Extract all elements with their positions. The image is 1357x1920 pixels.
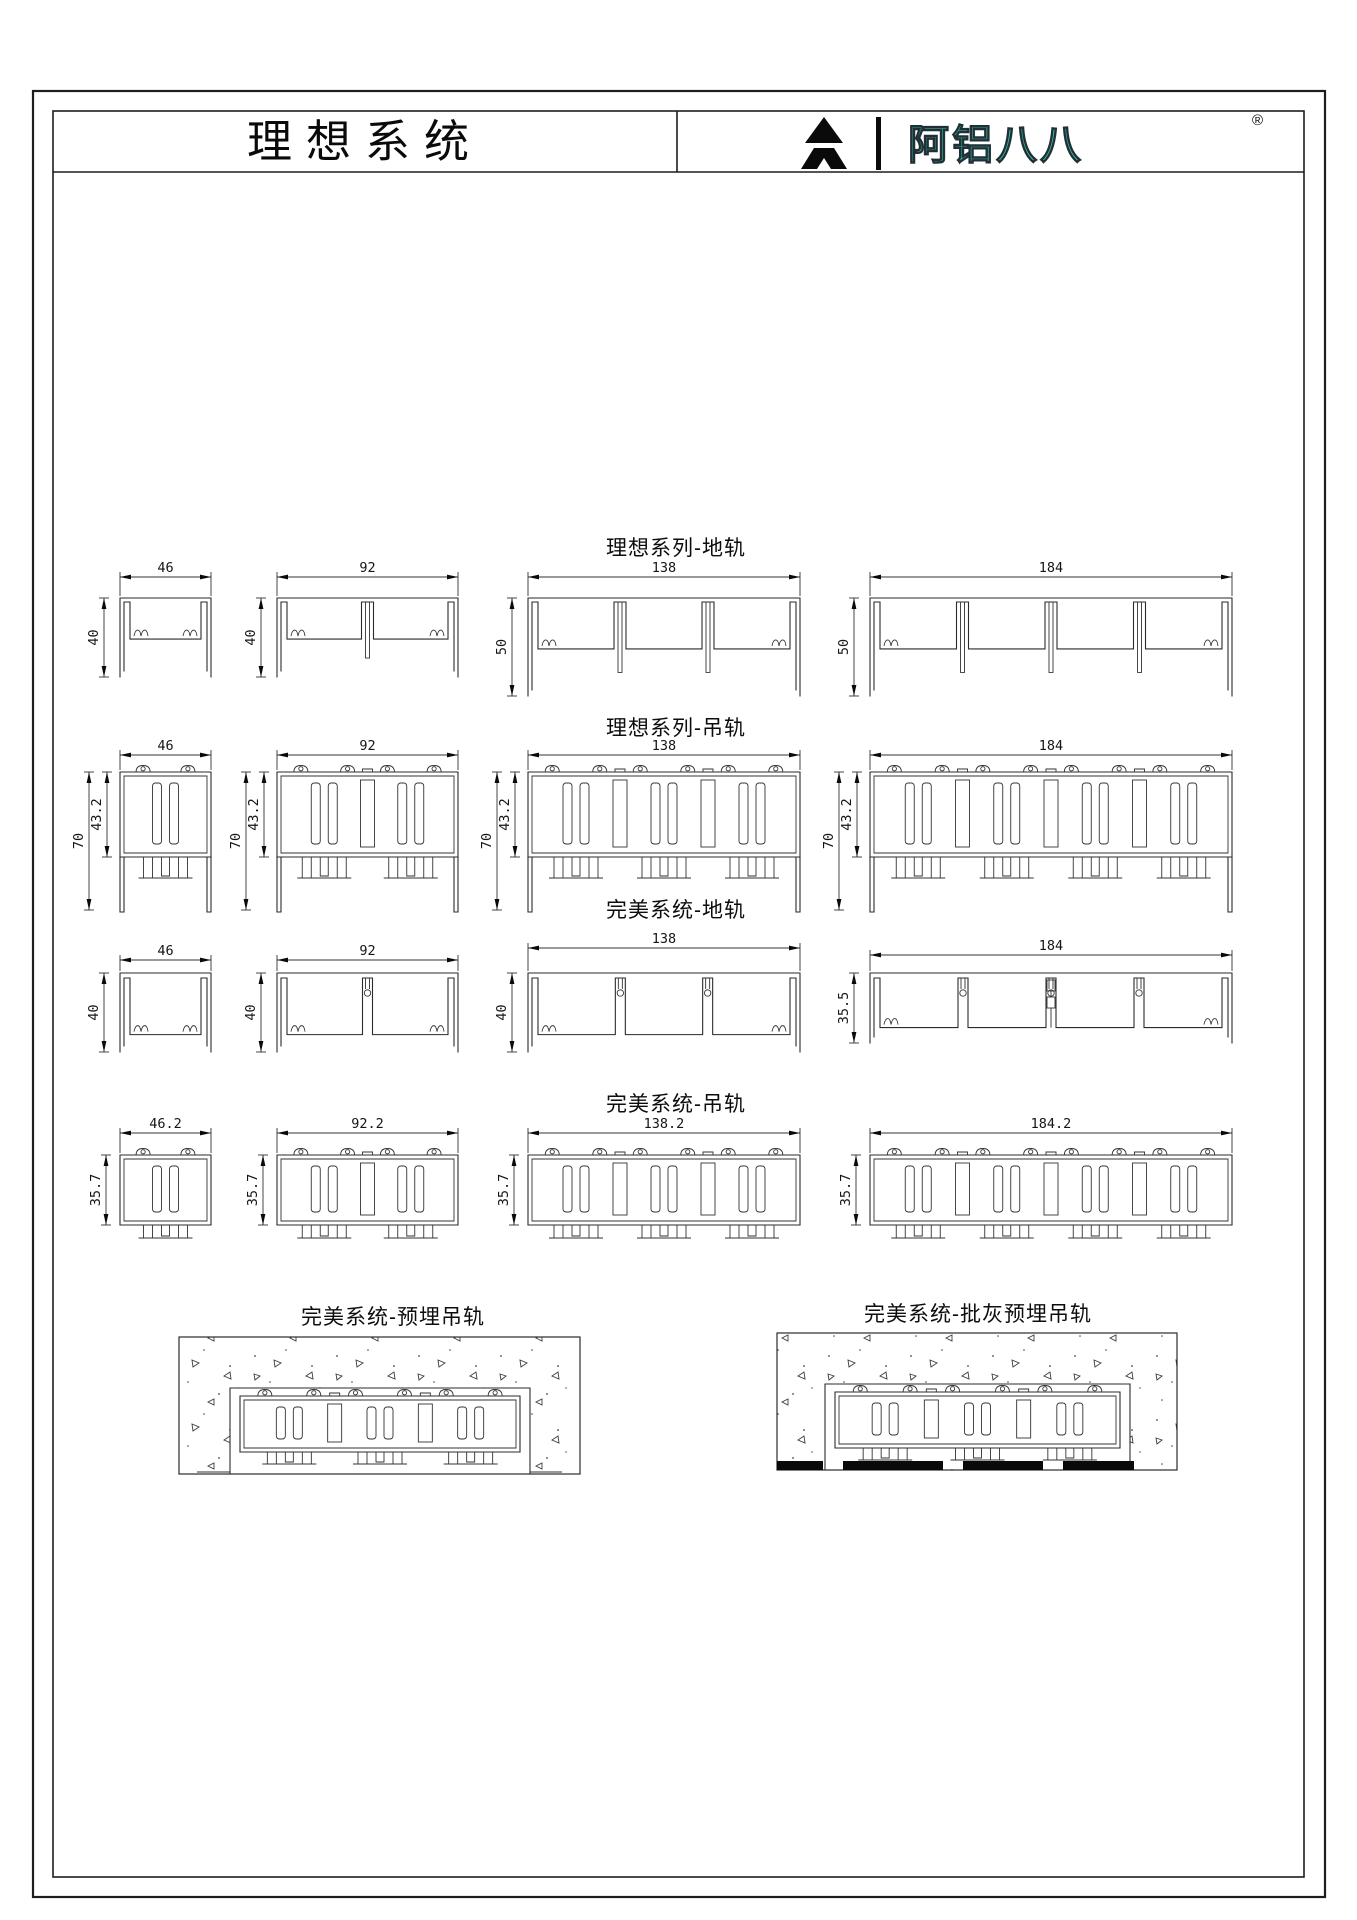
height-dimension-label: 40 — [86, 1004, 102, 1020]
embedded-title: 完美系统-批灰预埋吊轨 — [864, 1303, 1092, 1326]
height2-dimension: 43.2 — [839, 772, 862, 857]
width-dimension: 138 — [528, 738, 800, 770]
section-title: 理想系列-地轨 — [606, 537, 746, 560]
height-dimension-label: 70 — [228, 833, 244, 849]
height-dimension-label: 35.7 — [496, 1174, 512, 1207]
width-dimension: 184.2 — [870, 1116, 1232, 1153]
height-dimension-label: 70 — [479, 833, 495, 849]
inner-border — [53, 111, 1304, 1877]
width-dimension: 92 — [277, 943, 458, 971]
width-dimension: 46 — [120, 738, 211, 770]
height-dimension: 35.7 — [496, 1155, 519, 1225]
height-dimension-label: 43.2 — [839, 798, 855, 831]
registered-mark-icon: ® — [1252, 112, 1263, 129]
profile-drawing-46: 467043.2 — [71, 738, 211, 912]
height-dimension-label: 70 — [821, 833, 837, 849]
width-dimension-label: 138 — [652, 560, 676, 576]
width-dimension-label: 184.2 — [1031, 1116, 1072, 1132]
recess — [825, 1384, 1130, 1469]
drawing-sheet: 理想系统 阿铝八八 ® 理想系列-地轨464092401385018450理想系… — [0, 0, 1357, 1920]
outer-border — [33, 91, 1325, 1897]
profile-drawings: 理想系列-地轨464092401385018450理想系列-吊轨467043.2… — [71, 537, 1232, 1474]
width-dimension: 138 — [528, 560, 800, 596]
plaster-strip — [963, 1461, 1043, 1470]
width-dimension-label: 46 — [157, 560, 173, 576]
height-dimension: 50 — [494, 598, 517, 696]
height-dimension-label: 43.2 — [246, 798, 262, 831]
section-title: 完美系统-地轨 — [606, 899, 746, 922]
height-dimension: 40 — [243, 598, 266, 677]
profile-drawing-92.2: 92.235.7 — [245, 1116, 458, 1238]
height-dimension: 40 — [494, 973, 517, 1052]
width-dimension-label: 138 — [652, 931, 676, 947]
height2-dimension: 43.2 — [89, 772, 112, 857]
width-dimension: 184 — [870, 738, 1232, 770]
height-dimension: 40 — [86, 598, 109, 677]
logo-mark-icon — [801, 117, 847, 169]
height-dimension: 70 — [71, 772, 94, 910]
height-dimension: 35.7 — [88, 1155, 111, 1225]
width-dimension-label: 92 — [359, 738, 375, 754]
width-dimension: 46.2 — [120, 1116, 211, 1153]
height-dimension-label: 40 — [494, 1004, 510, 1020]
section-2: 完美系统-地轨464092401384018435.5 — [86, 899, 1232, 1052]
height-dimension: 35.5 — [836, 973, 859, 1043]
width-dimension-label: 184 — [1039, 938, 1063, 954]
profile-drawing-184: 18450 — [836, 560, 1232, 696]
profile-drawing-138.2: 138.235.7 — [496, 1116, 800, 1238]
width-dimension: 138.2 — [528, 1116, 800, 1153]
height-dimension-label: 40 — [243, 1004, 259, 1020]
width-dimension-label: 138.2 — [644, 1116, 685, 1132]
section-3: 完美系统-吊轨46.235.792.235.7138.235.7184.235.… — [88, 1093, 1232, 1238]
height-dimension-label: 70 — [71, 833, 87, 849]
height2-dimension: 43.2 — [246, 772, 269, 857]
page-title: 理想系统 — [247, 116, 483, 167]
width-dimension-label: 138 — [652, 738, 676, 754]
height-dimension: 40 — [243, 973, 266, 1052]
profile-drawing-184: 1847043.2 — [821, 738, 1232, 912]
height2-dimension: 43.2 — [497, 772, 520, 857]
width-dimension: 138 — [528, 931, 800, 971]
title-block: 理想系统 阿铝八八 ® — [247, 112, 1263, 170]
width-dimension-label: 184 — [1039, 738, 1063, 754]
width-dimension-label: 46.2 — [149, 1116, 182, 1132]
section-1: 理想系列-吊轨467043.2927043.21387043.21847043.… — [71, 717, 1232, 912]
height-dimension-label: 35.7 — [245, 1174, 261, 1207]
width-dimension-label: 92.2 — [351, 1116, 384, 1132]
height-dimension: 70 — [821, 772, 844, 910]
profile-drawing-138: 1387043.2 — [479, 738, 800, 912]
height-dimension-label: 35.7 — [838, 1174, 854, 1207]
height-dimension: 70 — [479, 772, 502, 910]
height-dimension-label: 50 — [494, 639, 510, 655]
height-dimension: 40 — [86, 973, 109, 1052]
height-dimension-label: 43.2 — [89, 798, 105, 831]
profile-drawing-46: 4640 — [86, 943, 211, 1052]
width-dimension: 46 — [120, 943, 211, 971]
profile-drawing-92: 9240 — [243, 943, 458, 1052]
height-dimension-label: 40 — [86, 629, 102, 645]
embedded-drawing-0: 完美系统-预埋吊轨 — [179, 1306, 580, 1474]
width-dimension-label: 92 — [359, 560, 375, 576]
section-title: 理想系列-吊轨 — [606, 717, 746, 740]
profile-drawing-184.2: 184.235.7 — [838, 1116, 1232, 1238]
width-dimension: 92 — [277, 560, 458, 596]
recess — [230, 1388, 530, 1473]
width-dimension-label: 92 — [359, 943, 375, 959]
width-dimension: 184 — [870, 938, 1232, 971]
width-dimension: 92.2 — [277, 1116, 458, 1153]
width-dimension: 184 — [870, 560, 1232, 596]
height-dimension-label: 50 — [836, 639, 852, 655]
brand-logo: 阿铝八八 ® — [801, 112, 1263, 170]
section-title: 完美系统-吊轨 — [606, 1093, 746, 1116]
section-0: 理想系列-地轨464092401385018450 — [86, 537, 1232, 696]
height-dimension-label: 35.7 — [88, 1174, 104, 1207]
profile-drawing-46.2: 46.235.7 — [88, 1116, 211, 1238]
height-dimension-label: 35.5 — [836, 992, 852, 1025]
profile-drawing-138: 13850 — [494, 560, 800, 696]
profile-drawing-92: 927043.2 — [228, 738, 458, 912]
plaster-strip — [1063, 1461, 1134, 1470]
height-dimension: 70 — [228, 772, 251, 910]
plaster-strip — [843, 1461, 943, 1470]
embedded-drawing-1: 完美系统-批灰预埋吊轨 — [777, 1303, 1177, 1470]
height-dimension: 35.7 — [838, 1155, 861, 1225]
embedded-title: 完美系统-预埋吊轨 — [301, 1306, 485, 1329]
height-dimension-label: 43.2 — [497, 798, 513, 831]
width-dimension: 92 — [277, 738, 458, 770]
width-dimension-label: 46 — [157, 943, 173, 959]
profile-drawing-46: 4640 — [86, 560, 211, 677]
width-dimension-label: 46 — [157, 738, 173, 754]
sheet-borders — [33, 91, 1325, 1897]
logo-separator-bar — [876, 117, 881, 170]
brand-name: 阿铝八八 — [908, 122, 1084, 168]
width-dimension: 46 — [120, 560, 211, 596]
profile-drawing-184: 18435.5 — [836, 938, 1232, 1043]
height-dimension: 50 — [836, 598, 859, 696]
plaster-strip — [777, 1461, 823, 1470]
height-dimension: 35.7 — [245, 1155, 268, 1225]
width-dimension-label: 184 — [1039, 560, 1063, 576]
profile-drawing-92: 9240 — [243, 560, 458, 677]
profile-drawing-138: 13840 — [494, 931, 800, 1052]
height-dimension-label: 40 — [243, 629, 259, 645]
